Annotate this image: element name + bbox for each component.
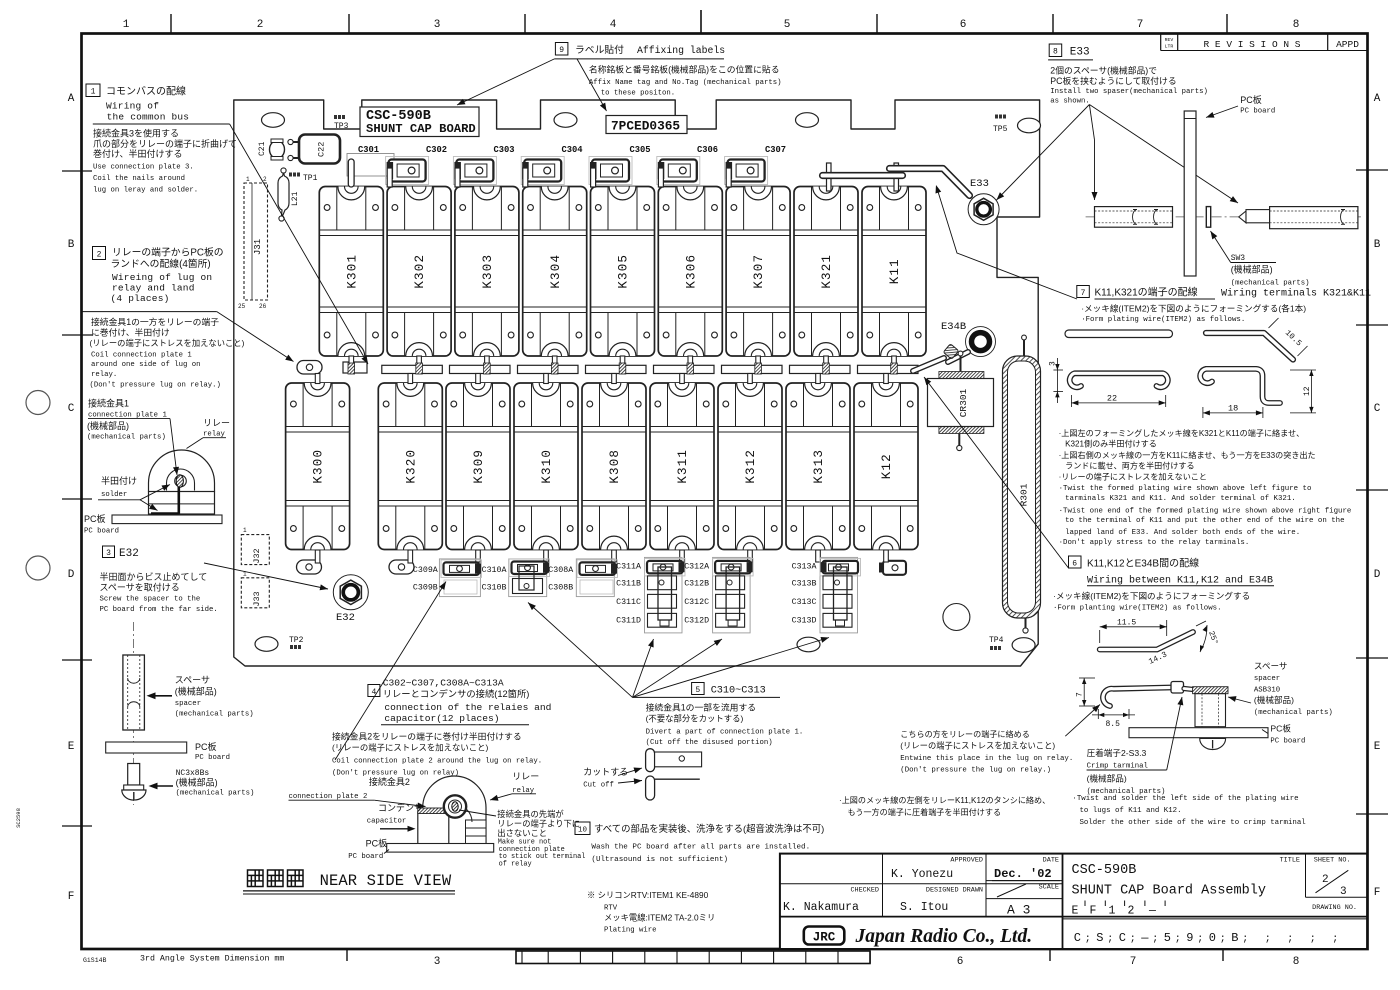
svg-text:もう一方の端子に圧着端子を半田付けする: もう一方の端子に圧着端子を半田付けする bbox=[848, 807, 1002, 817]
svg-text:1: 1 bbox=[246, 176, 250, 183]
svg-text:Coil connection plate 1: Coil connection plate 1 bbox=[91, 352, 192, 360]
svg-text:·Form planting wire(ITEM2) as: ·Form planting wire(ITEM2) as follows. bbox=[1053, 605, 1222, 613]
svg-text:C308B: C308B bbox=[548, 584, 573, 593]
svg-text:·Twist the formed plating wire: ·Twist the formed plating wire shown abo… bbox=[1059, 485, 1312, 493]
svg-text:PC板: PC板 bbox=[84, 513, 106, 524]
svg-text:26: 26 bbox=[259, 303, 267, 310]
svg-text:8: 8 bbox=[1293, 19, 1300, 31]
svg-text:—: — bbox=[1148, 905, 1156, 918]
svg-text:;: ; bbox=[1152, 934, 1158, 945]
svg-text:10: 10 bbox=[578, 827, 588, 835]
svg-text:Cut off: Cut off bbox=[583, 782, 614, 790]
svg-text:E: E bbox=[1072, 905, 1079, 918]
svg-text:PC board: PC board bbox=[1270, 738, 1305, 746]
svg-text:C311C: C311C bbox=[616, 598, 641, 607]
svg-text:REV: REV bbox=[1165, 37, 1174, 43]
svg-text:(機械部品): (機械部品) bbox=[176, 776, 218, 787]
svg-text:ランドに載せ、両方を半田付けする: ランドに載せ、両方を半田付けする bbox=[1065, 460, 1195, 470]
svg-text:スペーサ: スペーサ bbox=[1254, 661, 1288, 671]
svg-text:;: ; bbox=[1265, 934, 1271, 945]
svg-text:出さないこと: 出さないこと bbox=[497, 828, 547, 838]
svg-text:C313D: C313D bbox=[792, 617, 817, 626]
svg-text:(機械部品): (機械部品) bbox=[1231, 264, 1273, 275]
svg-text:D: D bbox=[1374, 569, 1381, 581]
svg-text:8: 8 bbox=[1293, 956, 1300, 968]
svg-text:こちらの方をリレーの端子に絡める: こちらの方をリレーの端子に絡める bbox=[900, 729, 1030, 739]
svg-text:·Form plating wire(ITEM2) as f: ·Form plating wire(ITEM2) as follows. bbox=[1081, 316, 1245, 324]
svg-text:E: E bbox=[1374, 741, 1381, 753]
svg-text:to lugs of K11 and K12.: to lugs of K11 and K12. bbox=[1080, 807, 1182, 815]
svg-text:R E V I S I O N S: R E V I S I O N S bbox=[1204, 39, 1301, 50]
svg-text:5: 5 bbox=[695, 686, 700, 695]
svg-text:·上図のメッキ線の左側をリレーK11,K12のタンシに絡め、: ·上図のメッキ線の左側をリレーK11,K12のタンシに絡め、 bbox=[839, 795, 1050, 805]
svg-text:Wiring terminals K321&K11: Wiring terminals K321&K11 bbox=[1221, 288, 1371, 300]
svg-text:5: 5 bbox=[1164, 931, 1171, 945]
svg-text:爪の部分をリレーの端子に折曲げて: 爪の部分をリレーの端子に折曲げて bbox=[93, 138, 237, 149]
svg-text:C303: C303 bbox=[493, 145, 514, 155]
svg-text:ランドへの配線(4箇所): ランドへの配線(4箇所) bbox=[111, 257, 211, 270]
svg-text:;: ; bbox=[1085, 934, 1091, 945]
svg-text:Install two spaser(mechanical: Install two spaser(mechanical parts) bbox=[1050, 88, 1208, 96]
svg-text:K11: K11 bbox=[888, 258, 902, 284]
svg-text:C309B: C309B bbox=[413, 584, 438, 593]
svg-text:すべての部品を実装後、洗浄をする(超音波洗浄は不可): すべての部品を実装後、洗浄をする(超音波洗浄は不可) bbox=[594, 823, 824, 834]
svg-text:SC2598: SC2598 bbox=[15, 808, 22, 828]
svg-text:CR301: CR301 bbox=[958, 388, 969, 417]
svg-text:E34B: E34B bbox=[941, 321, 966, 333]
svg-text:半田付け: 半田付け bbox=[101, 475, 137, 486]
svg-text:に巻付け、半田付け: に巻付け、半田付け bbox=[91, 327, 170, 338]
svg-text:the common bus: the common bus bbox=[107, 112, 190, 123]
svg-text:PC板: PC板 bbox=[1270, 723, 1291, 734]
svg-text:B: B bbox=[68, 239, 75, 251]
svg-text:スペーサ: スペーサ bbox=[175, 675, 210, 685]
svg-text:NEAR SIDE VIEW: NEAR SIDE VIEW bbox=[320, 872, 452, 890]
svg-text:K11,K321の端子の配線: K11,K321の端子の配線 bbox=[1095, 286, 1198, 299]
svg-text:3rd Angle System Dimension mm: 3rd Angle System Dimension mm bbox=[140, 954, 284, 964]
svg-text:PC board: PC board bbox=[84, 528, 119, 536]
svg-text:スペーサを取付ける: スペーサを取付ける bbox=[100, 582, 180, 592]
svg-text:A 3: A 3 bbox=[1007, 903, 1030, 918]
svg-text:J32: J32 bbox=[252, 548, 262, 563]
svg-text:C: C bbox=[1119, 931, 1126, 945]
svg-text:as shown.: as shown. bbox=[1050, 98, 1089, 106]
svg-text:リレー: リレー bbox=[203, 418, 230, 428]
svg-text:25: 25 bbox=[238, 303, 246, 310]
svg-text:TP3: TP3 bbox=[334, 122, 349, 131]
svg-text:Crimp tarminal: Crimp tarminal bbox=[1087, 763, 1148, 771]
svg-text:3: 3 bbox=[434, 956, 441, 968]
svg-text:(機械部品): (機械部品) bbox=[87, 420, 129, 431]
svg-text:to the terminal of K11 and put: to the terminal of K11 and put the other… bbox=[1065, 517, 1344, 525]
svg-text:8.5: 8.5 bbox=[1106, 720, 1121, 729]
svg-text:(Cut off the disused portion): (Cut off the disused portion) bbox=[646, 739, 773, 747]
svg-text:·Twist one end of the formed p: ·Twist one end of the formed plating wir… bbox=[1059, 508, 1352, 516]
svg-text:C312B: C312B bbox=[684, 580, 709, 589]
svg-text:K307: K307 bbox=[752, 254, 766, 289]
svg-text:;: ; bbox=[1130, 934, 1136, 945]
svg-text:6: 6 bbox=[960, 19, 967, 31]
svg-text:D: D bbox=[68, 569, 75, 581]
svg-text:·Twist and solder the left sid: ·Twist and solder the left side of the p… bbox=[1072, 795, 1298, 803]
svg-text:K. Yonezu: K. Yonezu bbox=[891, 868, 953, 881]
svg-text:spacer: spacer bbox=[1254, 675, 1280, 683]
svg-text:K305: K305 bbox=[617, 254, 631, 289]
svg-text:C305: C305 bbox=[629, 145, 650, 155]
svg-text:1: 1 bbox=[1109, 905, 1116, 918]
svg-text:(機械部品): (機械部品) bbox=[175, 686, 217, 697]
svg-text:·上図左のフォーミングしたメッキ線をK321とK11の端子に: ·上図左のフォーミングしたメッキ線をK321とK11の端子に絡ませ、 bbox=[1059, 428, 1305, 438]
svg-text:(機械部品): (機械部品) bbox=[1087, 773, 1127, 784]
svg-text:C307: C307 bbox=[765, 145, 786, 155]
svg-text:K300: K300 bbox=[312, 449, 326, 484]
svg-text:S. Itou: S. Itou bbox=[900, 901, 948, 914]
svg-text:E: E bbox=[68, 741, 75, 753]
svg-text:C: C bbox=[1374, 403, 1381, 415]
svg-text:7PCED0365: 7PCED0365 bbox=[611, 119, 680, 134]
svg-text:C311B: C311B bbox=[616, 580, 641, 589]
svg-text:TP2: TP2 bbox=[289, 636, 304, 645]
svg-text:(機械部品): (機械部品) bbox=[1254, 694, 1294, 705]
svg-text:(Ultrasound is not sufficient): (Ultrasound is not sufficient) bbox=[591, 856, 728, 864]
svg-text:solder: solder bbox=[101, 491, 127, 499]
svg-text:CHECKED: CHECKED bbox=[850, 887, 879, 895]
svg-text:接続金具2: 接続金具2 bbox=[369, 776, 410, 787]
svg-text:C309A: C309A bbox=[413, 566, 438, 575]
svg-text:C308A: C308A bbox=[548, 566, 573, 575]
svg-text:K11,K12とE34B間の配線: K11,K12とE34B間の配線 bbox=[1087, 557, 1199, 570]
svg-text:圧着端子2-S3.3: 圧着端子2-S3.3 bbox=[1087, 747, 1147, 758]
svg-text:Wiring between K11,K12 and E34: Wiring between K11,K12 and E34B bbox=[1087, 575, 1273, 587]
svg-text:DATE: DATE bbox=[1043, 857, 1059, 865]
svg-text:名称銘板と番号銘板(機械部品)をこの位置に貼る: 名称銘板と番号銘板(機械部品)をこの位置に貼る bbox=[589, 64, 780, 75]
svg-text:capacitor: capacitor bbox=[367, 818, 406, 826]
svg-text:APPROVED: APPROVED bbox=[950, 857, 983, 865]
svg-text:コモンバスの配線: コモンバスの配線 bbox=[106, 85, 186, 98]
svg-text:·リレーの端子にストレスを加えないこと: ·リレーの端子にストレスを加えないこと bbox=[1059, 472, 1207, 482]
svg-text:18: 18 bbox=[1228, 404, 1238, 414]
svg-text:relay.: relay. bbox=[91, 371, 117, 379]
svg-text:SCALE: SCALE bbox=[1039, 884, 1059, 892]
svg-text:3: 3 bbox=[1049, 361, 1058, 366]
svg-text:Wiring of: Wiring of bbox=[106, 101, 159, 112]
svg-text:Solder the other side of the w: Solder the other side of the wire to cri… bbox=[1080, 819, 1307, 827]
svg-text:接続金具の先端が: 接続金具の先端が bbox=[497, 809, 564, 819]
svg-text:around one side of lug on: around one side of lug on bbox=[91, 361, 200, 369]
svg-text:K303: K303 bbox=[481, 254, 495, 289]
svg-text:·Don't apply stress to the rel: ·Don't apply stress to the relay tarmina… bbox=[1059, 539, 1250, 547]
svg-text:LTR: LTR bbox=[1165, 44, 1174, 50]
svg-text:K309: K309 bbox=[472, 449, 486, 484]
svg-text:C302~C307,C308A~C313A: C302~C307,C308A~C313A bbox=[383, 678, 504, 689]
svg-text:B: B bbox=[1231, 931, 1238, 945]
svg-text:C313C: C313C bbox=[792, 598, 817, 607]
svg-text:K12: K12 bbox=[880, 453, 894, 479]
svg-text:A: A bbox=[1374, 93, 1381, 105]
svg-text:·メッキ線(ITEM2)を下図のようにフォーミングする: ·メッキ線(ITEM2)を下図のようにフォーミングする bbox=[1053, 590, 1250, 601]
svg-text:C310B: C310B bbox=[482, 584, 507, 593]
svg-text:DESIGNED DRAWN: DESIGNED DRAWN bbox=[926, 887, 983, 895]
svg-text:接続金具2をリレーの端子に巻付け半田付けする: 接続金具2をリレーの端子に巻付け半田付けする bbox=[332, 731, 522, 742]
svg-text:9: 9 bbox=[559, 46, 564, 55]
svg-text:of relay: of relay bbox=[499, 861, 532, 869]
svg-text:(不要な部分をカットする): (不要な部分をカットする) bbox=[646, 714, 744, 724]
svg-text:Affix Name tag and No.Tag (mec: Affix Name tag and No.Tag (mechanical pa… bbox=[589, 79, 782, 87]
svg-text:·メッキ線(ITEM2)を下図のようにフォーミングする(各1: ·メッキ線(ITEM2)を下図のようにフォーミングする(各1本) bbox=[1081, 303, 1306, 314]
svg-text:PC board from the far side.: PC board from the far side. bbox=[100, 606, 218, 614]
svg-text:11.5: 11.5 bbox=[1117, 619, 1136, 628]
svg-text:4: 4 bbox=[610, 19, 617, 31]
svg-text:;: ; bbox=[1242, 934, 1248, 945]
svg-text:Wash the PC board after all pa: Wash the PC board after all parts are in… bbox=[591, 843, 810, 851]
svg-text:GiS14B: GiS14B bbox=[83, 957, 107, 964]
svg-text:(mechanical parts): (mechanical parts) bbox=[175, 710, 254, 718]
svg-text:Japan Radio Co., Ltd.: Japan Radio Co., Ltd. bbox=[855, 926, 1033, 947]
svg-text:SHEET NO.: SHEET NO. bbox=[1314, 857, 1351, 865]
svg-text:7: 7 bbox=[1130, 956, 1137, 968]
svg-text:K302: K302 bbox=[413, 254, 427, 289]
svg-text:C310A: C310A bbox=[482, 566, 507, 575]
svg-text:K304: K304 bbox=[549, 254, 563, 289]
svg-text:(Don't pressure lug on relay.): (Don't pressure lug on relay.) bbox=[90, 382, 221, 390]
svg-text:2: 2 bbox=[263, 176, 267, 183]
svg-text:Entwine this place in the lug: Entwine this place in the lug on relay. bbox=[900, 755, 1073, 763]
svg-text:Dec. '02: Dec. '02 bbox=[994, 867, 1052, 881]
svg-text:(mechanical parts): (mechanical parts) bbox=[1231, 279, 1310, 287]
svg-text:(mechanical parts): (mechanical parts) bbox=[176, 790, 255, 798]
svg-text:PC board: PC board bbox=[195, 754, 230, 762]
svg-text:·上図右側のメッキ線の一方をK11に絡ませ、もう一方をE33: ·上図右側のメッキ線の一方をK11に絡ませ、もう一方をE33の突き出た bbox=[1059, 450, 1316, 460]
svg-text:1: 1 bbox=[123, 19, 130, 31]
svg-text:(mechanical parts): (mechanical parts) bbox=[1254, 709, 1333, 717]
svg-text:K306: K306 bbox=[684, 254, 698, 289]
svg-text:リレーの端子からPC板の: リレーの端子からPC板の bbox=[112, 246, 224, 259]
svg-text:C312C: C312C bbox=[684, 598, 709, 607]
svg-text:Screw the spacer to the: Screw the spacer to the bbox=[100, 596, 201, 604]
svg-text:9: 9 bbox=[1186, 931, 1193, 945]
svg-text:K. Nakamura: K. Nakamura bbox=[783, 901, 859, 914]
svg-text:接続金具3を使用する: 接続金具3を使用する bbox=[93, 128, 179, 139]
svg-text:PC board: PC board bbox=[1240, 108, 1275, 116]
svg-text:;: ; bbox=[1287, 934, 1293, 945]
svg-text:K301: K301 bbox=[345, 254, 359, 289]
svg-text:TP1: TP1 bbox=[303, 174, 318, 183]
svg-text:SHUNT CAP BOARD: SHUNT CAP BOARD bbox=[366, 122, 476, 136]
svg-text:;: ; bbox=[1332, 934, 1338, 945]
svg-text:TP4: TP4 bbox=[989, 636, 1004, 645]
svg-text:(mechanical parts): (mechanical parts) bbox=[87, 434, 166, 442]
svg-text:メッキ電線:ITEM2 TA-2.0ミリ: メッキ電線:ITEM2 TA-2.0ミリ bbox=[604, 913, 715, 923]
svg-text:C311A: C311A bbox=[616, 563, 641, 572]
svg-text:ASB310: ASB310 bbox=[1254, 687, 1280, 695]
svg-text:Divert a part of connection pl: Divert a part of connection plate 1. bbox=[646, 728, 804, 736]
svg-text:Use connection plate 3.: Use connection plate 3. bbox=[93, 164, 194, 172]
svg-text:PC板: PC板 bbox=[1240, 94, 1262, 105]
svg-text:Plating wire: Plating wire bbox=[604, 927, 657, 935]
svg-text:カットする: カットする bbox=[583, 767, 628, 777]
svg-text:(Don't pressure the lug on rel: (Don't pressure the lug on relay.) bbox=[900, 767, 1051, 775]
svg-text:;: ; bbox=[1175, 934, 1181, 945]
svg-text:接続金具1の一部を流用する: 接続金具1の一部を流用する bbox=[646, 702, 756, 713]
svg-text:PC板: PC板 bbox=[195, 741, 217, 752]
svg-text:8: 8 bbox=[1053, 48, 1058, 57]
svg-text:7: 7 bbox=[1076, 692, 1085, 697]
svg-text:C22: C22 bbox=[317, 142, 327, 157]
svg-text:SW3: SW3 bbox=[1231, 254, 1246, 263]
svg-text:K308: K308 bbox=[608, 449, 622, 484]
svg-text:6: 6 bbox=[1072, 559, 1077, 568]
svg-text:connection of the relaies and: connection of the relaies and bbox=[384, 702, 551, 713]
svg-text:spacer: spacer bbox=[175, 700, 201, 708]
svg-text:capacitor(12 places): capacitor(12 places) bbox=[384, 713, 499, 724]
svg-text:TITLE: TITLE bbox=[1280, 857, 1300, 865]
svg-text:K312: K312 bbox=[744, 449, 758, 484]
svg-text:;: ; bbox=[1107, 934, 1113, 945]
svg-text:2: 2 bbox=[1128, 905, 1135, 918]
svg-text:DRAWING NO.: DRAWING NO. bbox=[1312, 904, 1357, 912]
svg-text:J33: J33 bbox=[252, 591, 262, 606]
svg-text:3: 3 bbox=[106, 549, 111, 558]
svg-text:APPD: APPD bbox=[1336, 39, 1359, 50]
svg-text:K313: K313 bbox=[812, 449, 826, 484]
svg-text:4: 4 bbox=[371, 688, 376, 697]
svg-text:—: — bbox=[1140, 931, 1149, 945]
svg-text:22: 22 bbox=[1107, 394, 1117, 404]
svg-text:(リレーの端子にストレスを加えないこと): (リレーの端子にストレスを加えないこと) bbox=[90, 338, 245, 348]
svg-text:F: F bbox=[68, 891, 75, 903]
svg-text:7: 7 bbox=[1137, 19, 1144, 31]
svg-text:K310: K310 bbox=[540, 449, 554, 484]
svg-text:(リレーの端子にストレスを加えないこと): (リレーの端子にストレスを加えないこと) bbox=[332, 743, 489, 753]
svg-text:2個のスペーサ(機械部品)で: 2個のスペーサ(機械部品)で bbox=[1050, 65, 1157, 76]
svg-text:リレーとコンデンサの接続(12箇所): リレーとコンデンサの接続(12箇所) bbox=[383, 688, 530, 699]
svg-text:C: C bbox=[68, 403, 75, 415]
svg-text:JRC: JRC bbox=[813, 931, 836, 945]
svg-text:F: F bbox=[1374, 887, 1381, 899]
svg-text:(リレーの端子にストレスを加えないこと): (リレーの端子にストレスを加えないこと) bbox=[900, 741, 1055, 751]
svg-text:RTV: RTV bbox=[604, 905, 618, 913]
svg-text:1: 1 bbox=[91, 88, 96, 97]
svg-text:C302: C302 bbox=[426, 145, 447, 155]
svg-text:0: 0 bbox=[1209, 931, 1216, 945]
svg-text:C306: C306 bbox=[697, 145, 718, 155]
svg-text:K321: K321 bbox=[820, 254, 834, 289]
svg-text:Coil the nails around: Coil the nails around bbox=[93, 175, 185, 183]
svg-text:K311: K311 bbox=[676, 449, 690, 484]
svg-text:Affixing labels: Affixing labels bbox=[637, 45, 725, 56]
svg-text:リレーの端子より下に: リレーの端子より下に bbox=[497, 819, 580, 829]
svg-text:C313A: C313A bbox=[792, 563, 817, 572]
svg-text:lug on leray and solder.: lug on leray and solder. bbox=[93, 187, 198, 195]
svg-text:1: 1 bbox=[243, 527, 247, 534]
svg-text:リレー: リレー bbox=[512, 772, 539, 782]
svg-text:C312D: C312D bbox=[684, 617, 709, 626]
svg-text:巻付け、半田付けする: 巻付け、半田付けする bbox=[93, 148, 183, 159]
svg-text:F: F bbox=[1090, 905, 1097, 918]
svg-text:TP5: TP5 bbox=[993, 125, 1008, 134]
svg-text:relay and land: relay and land bbox=[112, 283, 195, 294]
svg-text:;: ; bbox=[1197, 934, 1203, 945]
svg-text:S: S bbox=[1096, 931, 1103, 945]
svg-text:to these positon.: to these positon. bbox=[601, 90, 675, 98]
svg-text:L21: L21 bbox=[291, 191, 300, 206]
svg-text:B: B bbox=[1374, 239, 1381, 251]
svg-text:E32: E32 bbox=[119, 548, 139, 560]
svg-text:C312A: C312A bbox=[684, 563, 709, 572]
svg-text:3: 3 bbox=[434, 19, 441, 31]
svg-text:ラベル貼付: ラベル貼付 bbox=[575, 43, 624, 56]
svg-text:;: ; bbox=[1310, 934, 1316, 945]
svg-text:E33: E33 bbox=[1070, 47, 1090, 59]
svg-text:E33: E33 bbox=[970, 178, 989, 190]
svg-text:6: 6 bbox=[957, 956, 964, 968]
svg-text:;: ; bbox=[1220, 934, 1226, 945]
svg-text:Coil connection plate 2 around: Coil connection plate 2 around the lug o… bbox=[332, 758, 542, 766]
svg-text:C: C bbox=[1074, 931, 1081, 945]
svg-text:PC board: PC board bbox=[348, 853, 383, 861]
svg-text:C311D: C311D bbox=[616, 617, 641, 626]
svg-text:K320: K320 bbox=[404, 449, 418, 484]
svg-text:E32: E32 bbox=[336, 612, 355, 624]
svg-text:lapped land of E33. And solde: lapped land of E33. And solder both ends… bbox=[1065, 529, 1300, 537]
svg-text:R301: R301 bbox=[1019, 483, 1030, 506]
svg-text:※ シリコンRTV:ITEM1 KE-4890: ※ シリコンRTV:ITEM1 KE-4890 bbox=[587, 890, 709, 900]
svg-text:CSC-590B: CSC-590B bbox=[1072, 863, 1137, 878]
svg-text:5: 5 bbox=[784, 19, 791, 31]
svg-text:2: 2 bbox=[97, 251, 102, 260]
svg-text:接続金具1の一方をリレーの端子: 接続金具1の一方をリレーの端子 bbox=[91, 316, 219, 327]
svg-text:C313B: C313B bbox=[792, 580, 817, 589]
svg-text:K321側のみ半田付けする: K321側のみ半田付けする bbox=[1065, 439, 1157, 449]
svg-text:PC板を挟むようにして取付ける: PC板を挟むようにして取付ける bbox=[1050, 75, 1176, 86]
svg-text:PC板: PC板 bbox=[366, 838, 388, 849]
svg-text:A: A bbox=[68, 93, 75, 105]
svg-text:12: 12 bbox=[1303, 386, 1312, 396]
svg-text:7: 7 bbox=[1081, 289, 1086, 298]
svg-text:C310~C313: C310~C313 bbox=[711, 686, 766, 697]
svg-text:(4 places): (4 places) bbox=[111, 293, 170, 304]
svg-text:3: 3 bbox=[1340, 886, 1347, 898]
svg-text:C304: C304 bbox=[561, 145, 583, 155]
svg-text:SHUNT CAP Board Assembly: SHUNT CAP Board Assembly bbox=[1072, 884, 1266, 899]
svg-text:tarminals K321 and K11. And so: tarminals K321 and K11. And solder termi… bbox=[1065, 495, 1296, 503]
svg-text:半田面からビス止めてして: 半田面からビス止めてして bbox=[100, 571, 208, 582]
svg-text:2: 2 bbox=[257, 19, 264, 31]
svg-text:C21: C21 bbox=[258, 141, 267, 156]
svg-text:接続金具1: 接続金具1 bbox=[88, 398, 129, 409]
svg-text:Wireing of lug on: Wireing of lug on bbox=[112, 272, 212, 283]
svg-text:J31: J31 bbox=[253, 239, 263, 255]
